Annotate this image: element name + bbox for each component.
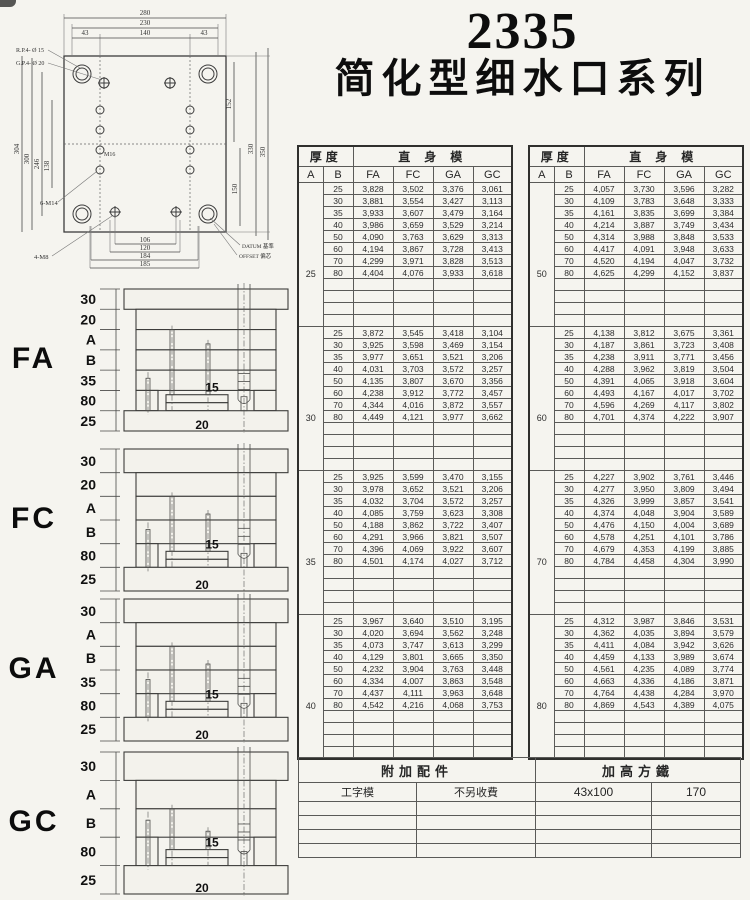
- price-cell: 4,068: [433, 699, 473, 711]
- price-cell: 3,533: [704, 231, 743, 243]
- price-cell: 4,438: [624, 687, 664, 699]
- price-row: 404,3744,0483,9043,589: [529, 507, 743, 519]
- price-row: 704,6794,3534,1993,885: [529, 543, 743, 555]
- price-row: 704,3444,0163,8723,557: [298, 399, 512, 411]
- price-cell: 3,507: [473, 531, 512, 543]
- price-row: 70254,2273,9023,7613,446: [529, 471, 743, 483]
- price-cell: 3,418: [433, 327, 473, 339]
- price-row: 354,1613,8353,6993,384: [529, 207, 743, 219]
- price-cell: 3,214: [473, 219, 512, 231]
- stack-dim-label: A: [86, 500, 96, 516]
- price-cell: 4,117: [664, 399, 704, 411]
- thickness-b-value: 35: [323, 207, 353, 219]
- price-cell: 3,703: [393, 363, 433, 375]
- price-cell: 3,948: [664, 243, 704, 255]
- price-cell: 4,065: [624, 375, 664, 387]
- price-cell: 3,529: [433, 219, 473, 231]
- price-cell: 4,031: [353, 363, 393, 375]
- empty-row: [529, 459, 743, 471]
- dim-280: 280: [140, 9, 151, 17]
- price-cell: 3,164: [473, 207, 512, 219]
- price-cell: 3,607: [473, 543, 512, 555]
- thickness-b-value: 30: [323, 483, 353, 495]
- price-cell: 3,694: [393, 627, 433, 639]
- price-cell: 4,135: [353, 375, 393, 387]
- price-cell: 4,194: [353, 243, 393, 255]
- price-cell: 4,187: [584, 339, 624, 351]
- stack-dim-label: A: [86, 627, 96, 643]
- price-cell: 4,167: [624, 387, 664, 399]
- empty-row: [298, 291, 512, 303]
- price-cell: 3,807: [393, 375, 433, 387]
- price-row: 604,6634,3364,1863,871: [529, 675, 743, 687]
- price-row: 704,5204,1944,0473,732: [529, 255, 743, 267]
- price-row: 404,4594,1333,9893,674: [529, 651, 743, 663]
- price-row: 704,3964,0693,9223,607: [298, 543, 512, 555]
- price-cell: 3,579: [704, 627, 743, 639]
- thickness-b-value: 25: [554, 327, 584, 339]
- thickness-a-value: 35: [298, 471, 323, 615]
- empty-row: [529, 567, 743, 579]
- empty-row: [298, 591, 512, 603]
- thickness-b-value: 35: [554, 639, 584, 651]
- thickness-b-value: 25: [554, 183, 584, 195]
- price-cell: 4,161: [584, 207, 624, 219]
- price-cell: 3,925: [353, 471, 393, 483]
- price-row: 404,1293,8013,6653,350: [298, 651, 512, 663]
- price-cell: 3,104: [473, 327, 512, 339]
- empty-row: [529, 423, 743, 435]
- col-header-b: B: [554, 167, 584, 183]
- price-row: 40253,9673,6403,5103,195: [298, 615, 512, 627]
- price-cell: 4,362: [584, 627, 624, 639]
- thickness-b-value: 80: [323, 411, 353, 423]
- thickness-b-value: 70: [554, 543, 584, 555]
- mold-diagram-fc: FC3020AB80251520: [6, 443, 292, 595]
- price-cell: 3,640: [393, 615, 433, 627]
- price-cell: 4,251: [624, 531, 664, 543]
- dim-230: 230: [140, 19, 151, 27]
- price-cell: 3,607: [393, 207, 433, 219]
- price-cell: 3,962: [624, 363, 664, 375]
- thickness-b-value: 35: [554, 351, 584, 363]
- price-cell: 3,521: [433, 483, 473, 495]
- thickness-a-value: 30: [298, 327, 323, 471]
- price-cell: 3,413: [473, 243, 512, 255]
- thickness-b-value: 40: [323, 651, 353, 663]
- price-cell: 3,674: [704, 651, 743, 663]
- thickness-b-value: 70: [554, 687, 584, 699]
- thickness-b-value: 70: [554, 399, 584, 411]
- price-row: 504,0903,7633,6293,313: [298, 231, 512, 243]
- price-cell: 3,986: [353, 219, 393, 231]
- empty-row: [298, 423, 512, 435]
- price-cell: 4,085: [353, 507, 393, 519]
- addon-item-name: 工字模: [299, 783, 417, 802]
- price-cell: 3,513: [473, 255, 512, 267]
- catalog-page: 280 230 43 140 43 304 300 246 138 152 15…: [0, 0, 750, 900]
- price-row: 704,2993,9713,8283,513: [298, 255, 512, 267]
- price-cell: 3,904: [664, 507, 704, 519]
- header-straight-mold: 直 身 模: [353, 146, 512, 167]
- thickness-a-value: 40: [298, 615, 323, 760]
- price-cell: 4,188: [353, 519, 393, 531]
- page-title-model: 2335: [300, 6, 745, 58]
- price-cell: 3,531: [704, 615, 743, 627]
- price-cell: 3,434: [704, 219, 743, 231]
- thickness-b-value: 35: [323, 351, 353, 363]
- price-cell: 3,978: [353, 483, 393, 495]
- price-row: 604,2913,9663,8213,507: [298, 531, 512, 543]
- price-row: 30253,8723,5453,4183,104: [298, 327, 512, 339]
- price-cell: 4,232: [353, 663, 393, 675]
- price-row: 60254,1383,8123,6753,361: [529, 327, 743, 339]
- price-table-right: 厚度直 身 模ABFAFCGAGC50254,0573,7303,5963,28…: [528, 145, 744, 760]
- price-cell: 3,867: [393, 243, 433, 255]
- price-cell: 4,277: [584, 483, 624, 495]
- price-cell: 3,857: [664, 495, 704, 507]
- stack-dim-label: B: [86, 815, 96, 831]
- price-row: 604,5784,2514,1013,786: [529, 531, 743, 543]
- stack-dim-label: A: [86, 787, 96, 803]
- price-cell: 3,774: [704, 663, 743, 675]
- price-cell: 3,626: [704, 639, 743, 651]
- price-row: 804,6254,2994,1523,837: [529, 267, 743, 279]
- mold-section-drawing: 3020AB3580251520: [62, 283, 292, 435]
- price-cell: 3,887: [624, 219, 664, 231]
- price-row: 403,9863,6593,5293,214: [298, 219, 512, 231]
- price-row: 25253,8283,5023,3763,061: [298, 183, 512, 195]
- price-cell: 3,732: [704, 255, 743, 267]
- price-cell: 3,763: [433, 663, 473, 675]
- price-cell: 4,344: [353, 399, 393, 411]
- empty-row: [298, 447, 512, 459]
- addon-header-left: 附加配件: [299, 758, 536, 783]
- price-cell: 3,771: [664, 351, 704, 363]
- thickness-b-value: 80: [323, 555, 353, 567]
- stack-dim-label: 25: [80, 571, 96, 587]
- price-row: 50254,0573,7303,5963,282: [529, 183, 743, 195]
- price-row: 504,4764,1504,0043,689: [529, 519, 743, 531]
- thickness-b-value: 40: [323, 219, 353, 231]
- dim-138: 138: [43, 160, 51, 171]
- price-cell: 3,786: [704, 531, 743, 543]
- thickness-b-value: 80: [554, 267, 584, 279]
- price-cell: 3,613: [433, 639, 473, 651]
- price-cell: 3,872: [353, 327, 393, 339]
- rp-pin-label: R.P.4- Ø 15: [16, 48, 44, 54]
- price-cell: 3,763: [393, 231, 433, 243]
- thickness-b-value: 50: [554, 663, 584, 675]
- price-cell: 3,861: [624, 339, 664, 351]
- empty-row: [298, 723, 512, 735]
- price-cell: 4,353: [624, 543, 664, 555]
- price-cell: 4,017: [664, 387, 704, 399]
- price-cell: 4,057: [584, 183, 624, 195]
- mold-type-label-gc: GC: [6, 805, 62, 839]
- empty-row: [298, 435, 512, 447]
- price-cell: 3,933: [353, 207, 393, 219]
- price-row: 804,5014,1744,0273,712: [298, 555, 512, 567]
- empty-row: [529, 579, 743, 591]
- header-straight-mold: 直 身 模: [584, 146, 743, 167]
- offset-note: OFFSET 偏芯: [239, 252, 272, 260]
- thickness-b-value: 50: [323, 519, 353, 531]
- price-cell: 4,501: [353, 555, 393, 567]
- price-cell: 3,113: [473, 195, 512, 207]
- price-cell: 4,091: [624, 243, 664, 255]
- price-cell: 3,548: [473, 675, 512, 687]
- price-cell: 4,047: [664, 255, 704, 267]
- empty-row: [298, 567, 512, 579]
- price-cell: 4,222: [664, 411, 704, 423]
- price-cell: 4,304: [664, 555, 704, 567]
- price-cell: 3,376: [433, 183, 473, 195]
- price-cell: 3,772: [433, 387, 473, 399]
- price-cell: 4,076: [393, 267, 433, 279]
- empty-row: [529, 291, 743, 303]
- price-row: 604,4934,1674,0173,702: [529, 387, 743, 399]
- price-cell: 3,248: [473, 627, 512, 639]
- price-cell: 3,809: [664, 483, 704, 495]
- mold-diagram-fa: FA3020AB3580251520: [6, 283, 292, 435]
- price-cell: 3,675: [664, 327, 704, 339]
- price-cell: 3,863: [433, 675, 473, 687]
- thickness-b-value: 25: [554, 471, 584, 483]
- stack-dim-label: A: [86, 332, 96, 348]
- price-row: 304,1873,8613,7233,408: [529, 339, 743, 351]
- empty-row: [529, 603, 743, 615]
- price-cell: 3,623: [433, 507, 473, 519]
- price-cell: 4,075: [704, 699, 743, 711]
- thickness-b-value: 35: [323, 639, 353, 651]
- price-cell: 3,604: [704, 375, 743, 387]
- thickness-b-value: 40: [554, 219, 584, 231]
- thickness-b-value: 80: [554, 411, 584, 423]
- price-cell: 3,911: [624, 351, 664, 363]
- price-cell: 4,129: [353, 651, 393, 663]
- price-cell: 4,336: [624, 675, 664, 687]
- page-title-series: 简化型细水口系列: [300, 58, 745, 100]
- price-cell: 4,069: [393, 543, 433, 555]
- thickness-b-value: 70: [323, 399, 353, 411]
- empty-row: [298, 315, 512, 327]
- inner-dim-20: 20: [195, 881, 209, 895]
- empty-row: [298, 603, 512, 615]
- price-cell: 3,407: [473, 519, 512, 531]
- col-header-a: A: [298, 167, 323, 183]
- price-row: 504,2323,9043,7633,448: [298, 663, 512, 675]
- empty-row: [529, 447, 743, 459]
- mold-diagram-ga: GA30AB3580251520: [6, 593, 292, 745]
- 4-m8-label: 4-M8: [34, 254, 48, 261]
- col-header-gc: GC: [473, 167, 512, 183]
- price-cell: 4,089: [664, 663, 704, 675]
- empty-row: [529, 279, 743, 291]
- thickness-b-value: 25: [323, 471, 353, 483]
- price-cell: 3,557: [473, 399, 512, 411]
- empty-row: [529, 435, 743, 447]
- price-cell: 4,458: [624, 555, 664, 567]
- price-cell: 3,195: [473, 615, 512, 627]
- price-cell: 4,314: [584, 231, 624, 243]
- thickness-a-value: 70: [529, 471, 554, 615]
- empty-row: [298, 735, 512, 747]
- price-cell: 3,408: [704, 339, 743, 351]
- dim-120: 120: [140, 244, 151, 252]
- price-cell: 3,257: [473, 363, 512, 375]
- dim-106: 106: [140, 236, 151, 244]
- price-cell: 3,783: [624, 195, 664, 207]
- price-cell: 4,109: [584, 195, 624, 207]
- inner-dim-15: 15: [205, 836, 219, 850]
- price-cell: 3,633: [704, 243, 743, 255]
- stack-dim-label: 80: [80, 393, 96, 409]
- price-cell: 3,662: [473, 411, 512, 423]
- price-cell: 3,282: [704, 183, 743, 195]
- thickness-b-value: 70: [323, 255, 353, 267]
- empty-row: [529, 591, 743, 603]
- gp-pin-label: G.P.4- Ø 20: [16, 61, 44, 67]
- dim-304: 304: [14, 143, 21, 154]
- price-cell: 4,459: [584, 651, 624, 663]
- price-cell: 3,470: [433, 471, 473, 483]
- thickness-a-value: 80: [529, 615, 554, 760]
- price-cell: 4,764: [584, 687, 624, 699]
- thickness-b-value: 60: [554, 243, 584, 255]
- col-header-ga: GA: [433, 167, 473, 183]
- mold-type-label-ga: GA: [6, 652, 62, 686]
- empty-row: [298, 279, 512, 291]
- price-cell: 4,625: [584, 267, 624, 279]
- stack-dim-label: B: [86, 352, 96, 368]
- price-cell: 4,299: [624, 267, 664, 279]
- thickness-b-value: 60: [323, 531, 353, 543]
- price-row: 704,7644,4384,2843,970: [529, 687, 743, 699]
- price-cell: 3,598: [393, 339, 433, 351]
- inner-dim-20: 20: [195, 728, 209, 742]
- stack-dim-label: 30: [80, 758, 96, 774]
- price-cell: 3,828: [433, 255, 473, 267]
- price-row: 404,2143,8873,7493,434: [529, 219, 743, 231]
- price-cell: 3,704: [393, 495, 433, 507]
- col-header-fa: FA: [584, 167, 624, 183]
- price-cell: 3,922: [433, 543, 473, 555]
- title-block: 2335 简化型细水口系列: [300, 6, 745, 100]
- thickness-b-value: 25: [323, 327, 353, 339]
- addon-table: 附加配件 加高方鐵 工字模 不另收費 43x100 170: [298, 757, 741, 858]
- price-cell: 4,133: [624, 651, 664, 663]
- price-row: 354,0323,7043,5723,257: [298, 495, 512, 507]
- price-cell: 4,291: [353, 531, 393, 543]
- thickness-b-value: 60: [323, 675, 353, 687]
- price-cell: 4,194: [624, 255, 664, 267]
- price-cell: 3,871: [704, 675, 743, 687]
- price-cell: 4,869: [584, 699, 624, 711]
- price-cell: 3,456: [704, 351, 743, 363]
- price-cell: 3,728: [433, 243, 473, 255]
- dim-350: 350: [259, 146, 267, 157]
- price-cell: 3,950: [624, 483, 664, 495]
- price-cell: 4,299: [353, 255, 393, 267]
- price-cell: 3,361: [704, 327, 743, 339]
- price-cell: 4,437: [353, 687, 393, 699]
- price-row: 354,3263,9993,8573,541: [529, 495, 743, 507]
- price-cell: 4,238: [584, 351, 624, 363]
- price-row: 404,0853,7593,6233,308: [298, 507, 512, 519]
- price-cell: 4,235: [624, 663, 664, 675]
- stack-dim-label: B: [86, 650, 96, 666]
- dim-152: 152: [225, 98, 233, 109]
- price-cell: 4,150: [624, 519, 664, 531]
- price-cell: 3,665: [433, 651, 473, 663]
- stack-dim-label: 80: [80, 843, 96, 859]
- price-cell: 3,479: [433, 207, 473, 219]
- price-cell: 4,084: [624, 639, 664, 651]
- price-row: 704,5964,2694,1173,802: [529, 399, 743, 411]
- price-cell: 4,269: [624, 399, 664, 411]
- thickness-b-value: 70: [323, 687, 353, 699]
- price-cell: 3,828: [353, 183, 393, 195]
- price-cell: 3,427: [433, 195, 473, 207]
- price-cell: 4,334: [353, 675, 393, 687]
- price-cell: 3,885: [704, 543, 743, 555]
- price-cell: 4,561: [584, 663, 624, 675]
- thickness-b-value: 35: [554, 495, 584, 507]
- price-cell: 3,802: [704, 399, 743, 411]
- dim-184: 184: [140, 252, 151, 260]
- price-cell: 3,999: [624, 495, 664, 507]
- dim-140: 140: [140, 29, 151, 37]
- price-cell: 3,670: [433, 375, 473, 387]
- price-cell: 3,699: [664, 207, 704, 219]
- inner-dim-20: 20: [195, 578, 209, 592]
- price-cell: 3,651: [393, 351, 433, 363]
- price-cell: 3,648: [664, 195, 704, 207]
- mold-type-label-fc: FC: [6, 502, 62, 536]
- thickness-b-value: 35: [323, 495, 353, 507]
- price-cell: 3,967: [353, 615, 393, 627]
- price-cell: 4,027: [433, 555, 473, 567]
- stack-dim-label: 20: [80, 477, 96, 493]
- price-row: 704,4374,1113,9633,648: [298, 687, 512, 699]
- price-cell: 4,493: [584, 387, 624, 399]
- thickness-b-value: 40: [323, 507, 353, 519]
- dim-150: 150: [231, 183, 239, 194]
- thickness-b-value: 70: [554, 255, 584, 267]
- thickness-b-value: 30: [323, 339, 353, 351]
- header-thickness: 厚度: [298, 146, 353, 167]
- header-thickness: 厚度: [529, 146, 584, 167]
- price-cell: 3,596: [664, 183, 704, 195]
- price-cell: 4,032: [353, 495, 393, 507]
- price-cell: 3,977: [353, 351, 393, 363]
- price-cell: 4,214: [584, 219, 624, 231]
- price-cell: 3,333: [704, 195, 743, 207]
- price-cell: 3,510: [433, 615, 473, 627]
- price-cell: 3,572: [433, 363, 473, 375]
- thickness-b-value: 50: [323, 231, 353, 243]
- price-cell: 4,138: [584, 327, 624, 339]
- price-cell: 4,784: [584, 555, 624, 567]
- price-cell: 3,155: [473, 471, 512, 483]
- thickness-b-value: 80: [554, 555, 584, 567]
- price-cell: 3,384: [704, 207, 743, 219]
- thickness-b-value: 40: [554, 507, 584, 519]
- thickness-b-value: 30: [554, 627, 584, 639]
- col-header-a: A: [529, 167, 554, 183]
- thickness-b-value: 50: [554, 519, 584, 531]
